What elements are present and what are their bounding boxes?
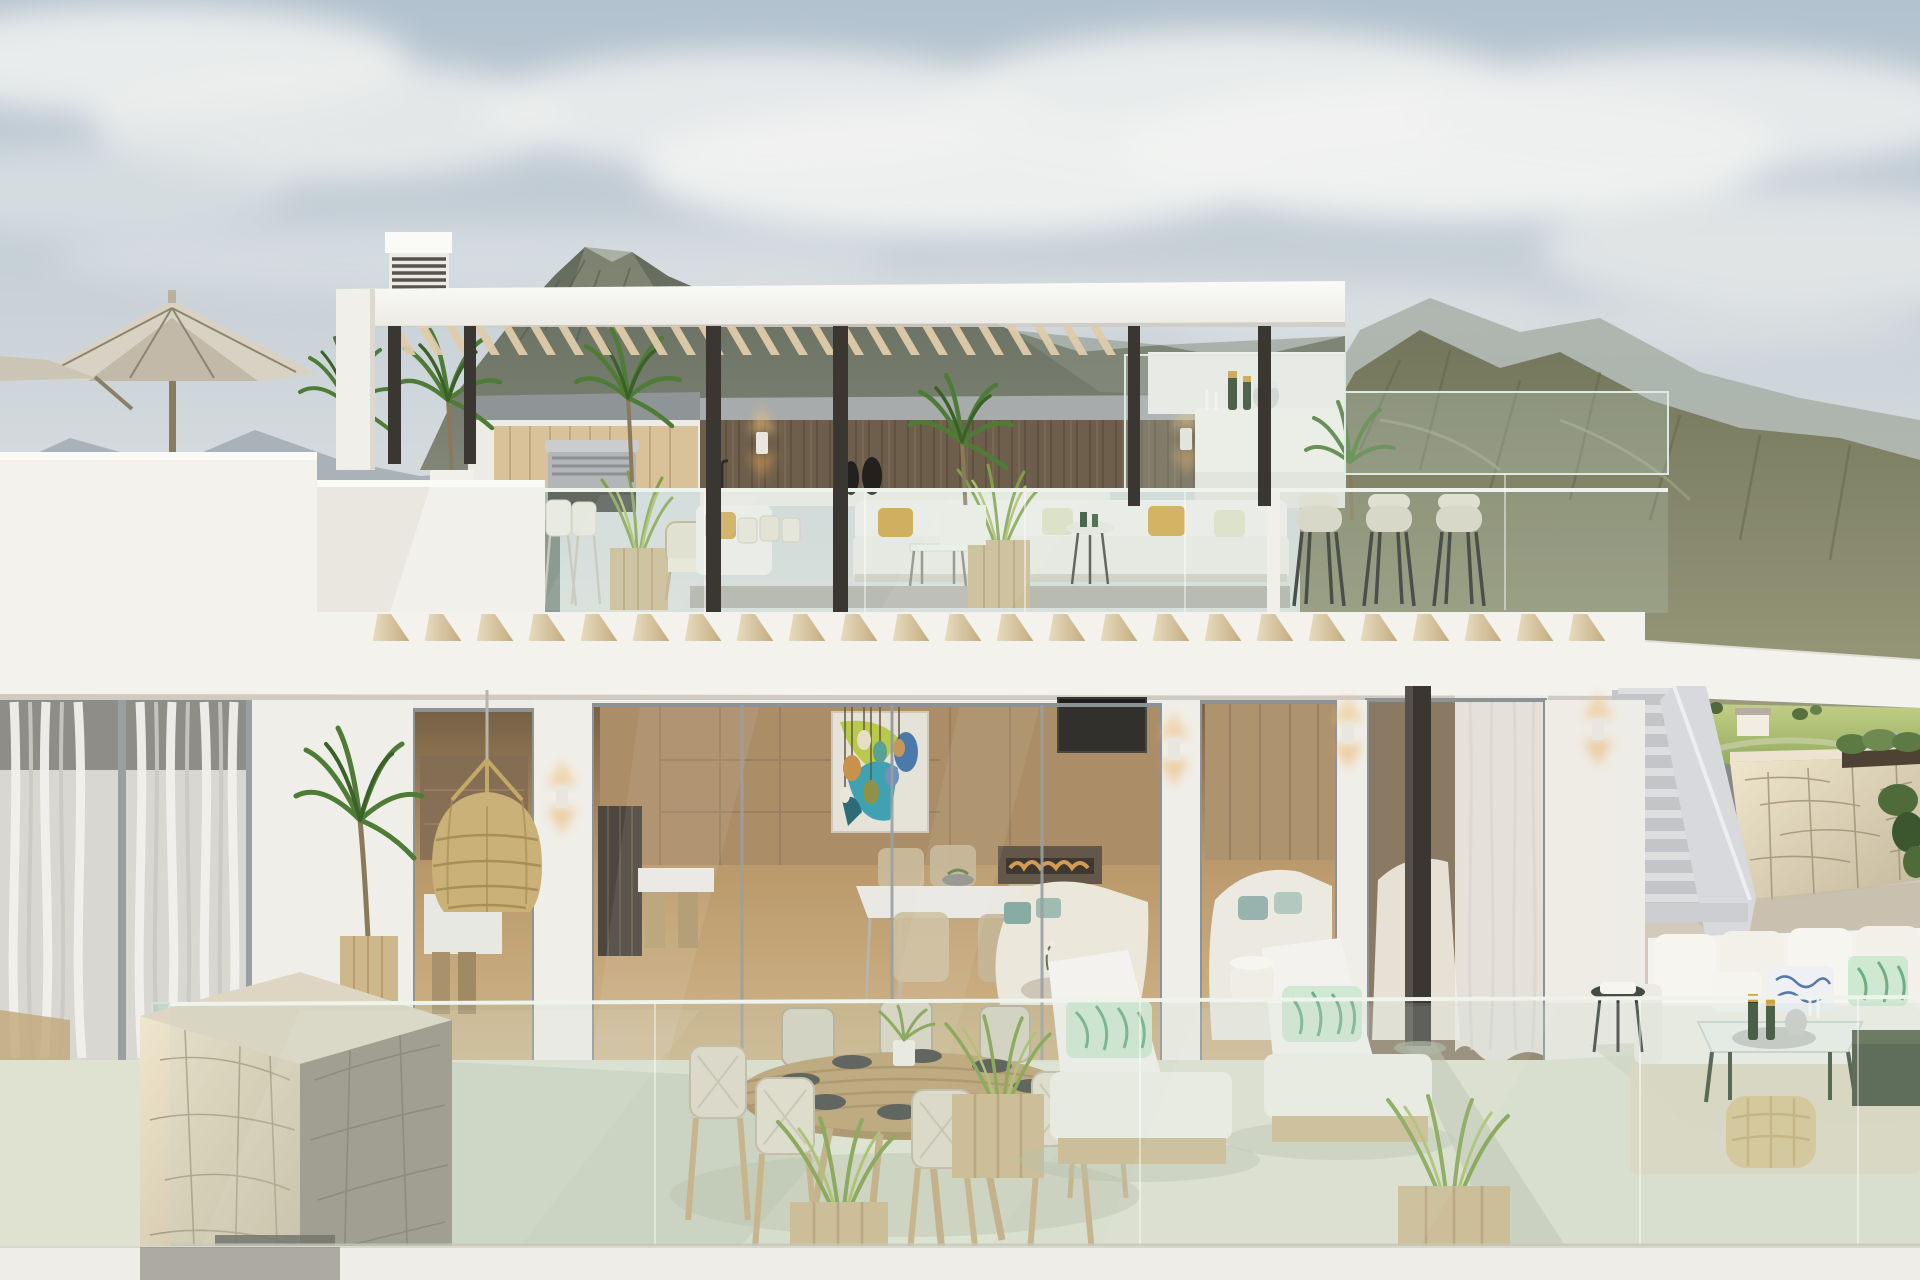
hillside-house	[1735, 708, 1771, 736]
stone-garden-wall	[1730, 729, 1920, 906]
roof-fin-band	[0, 612, 1645, 642]
glass-balustrade-lower	[170, 997, 1920, 1247]
side-stool	[1230, 956, 1274, 1002]
villa-render	[0, 0, 1920, 1280]
pergola-left-return	[336, 289, 375, 470]
bar-glass-screen	[1125, 355, 1345, 490]
chimney-vent	[385, 232, 452, 291]
parapet-left	[0, 455, 317, 618]
render-canvas	[0, 0, 1920, 1280]
balustrade-post	[1267, 492, 1280, 612]
